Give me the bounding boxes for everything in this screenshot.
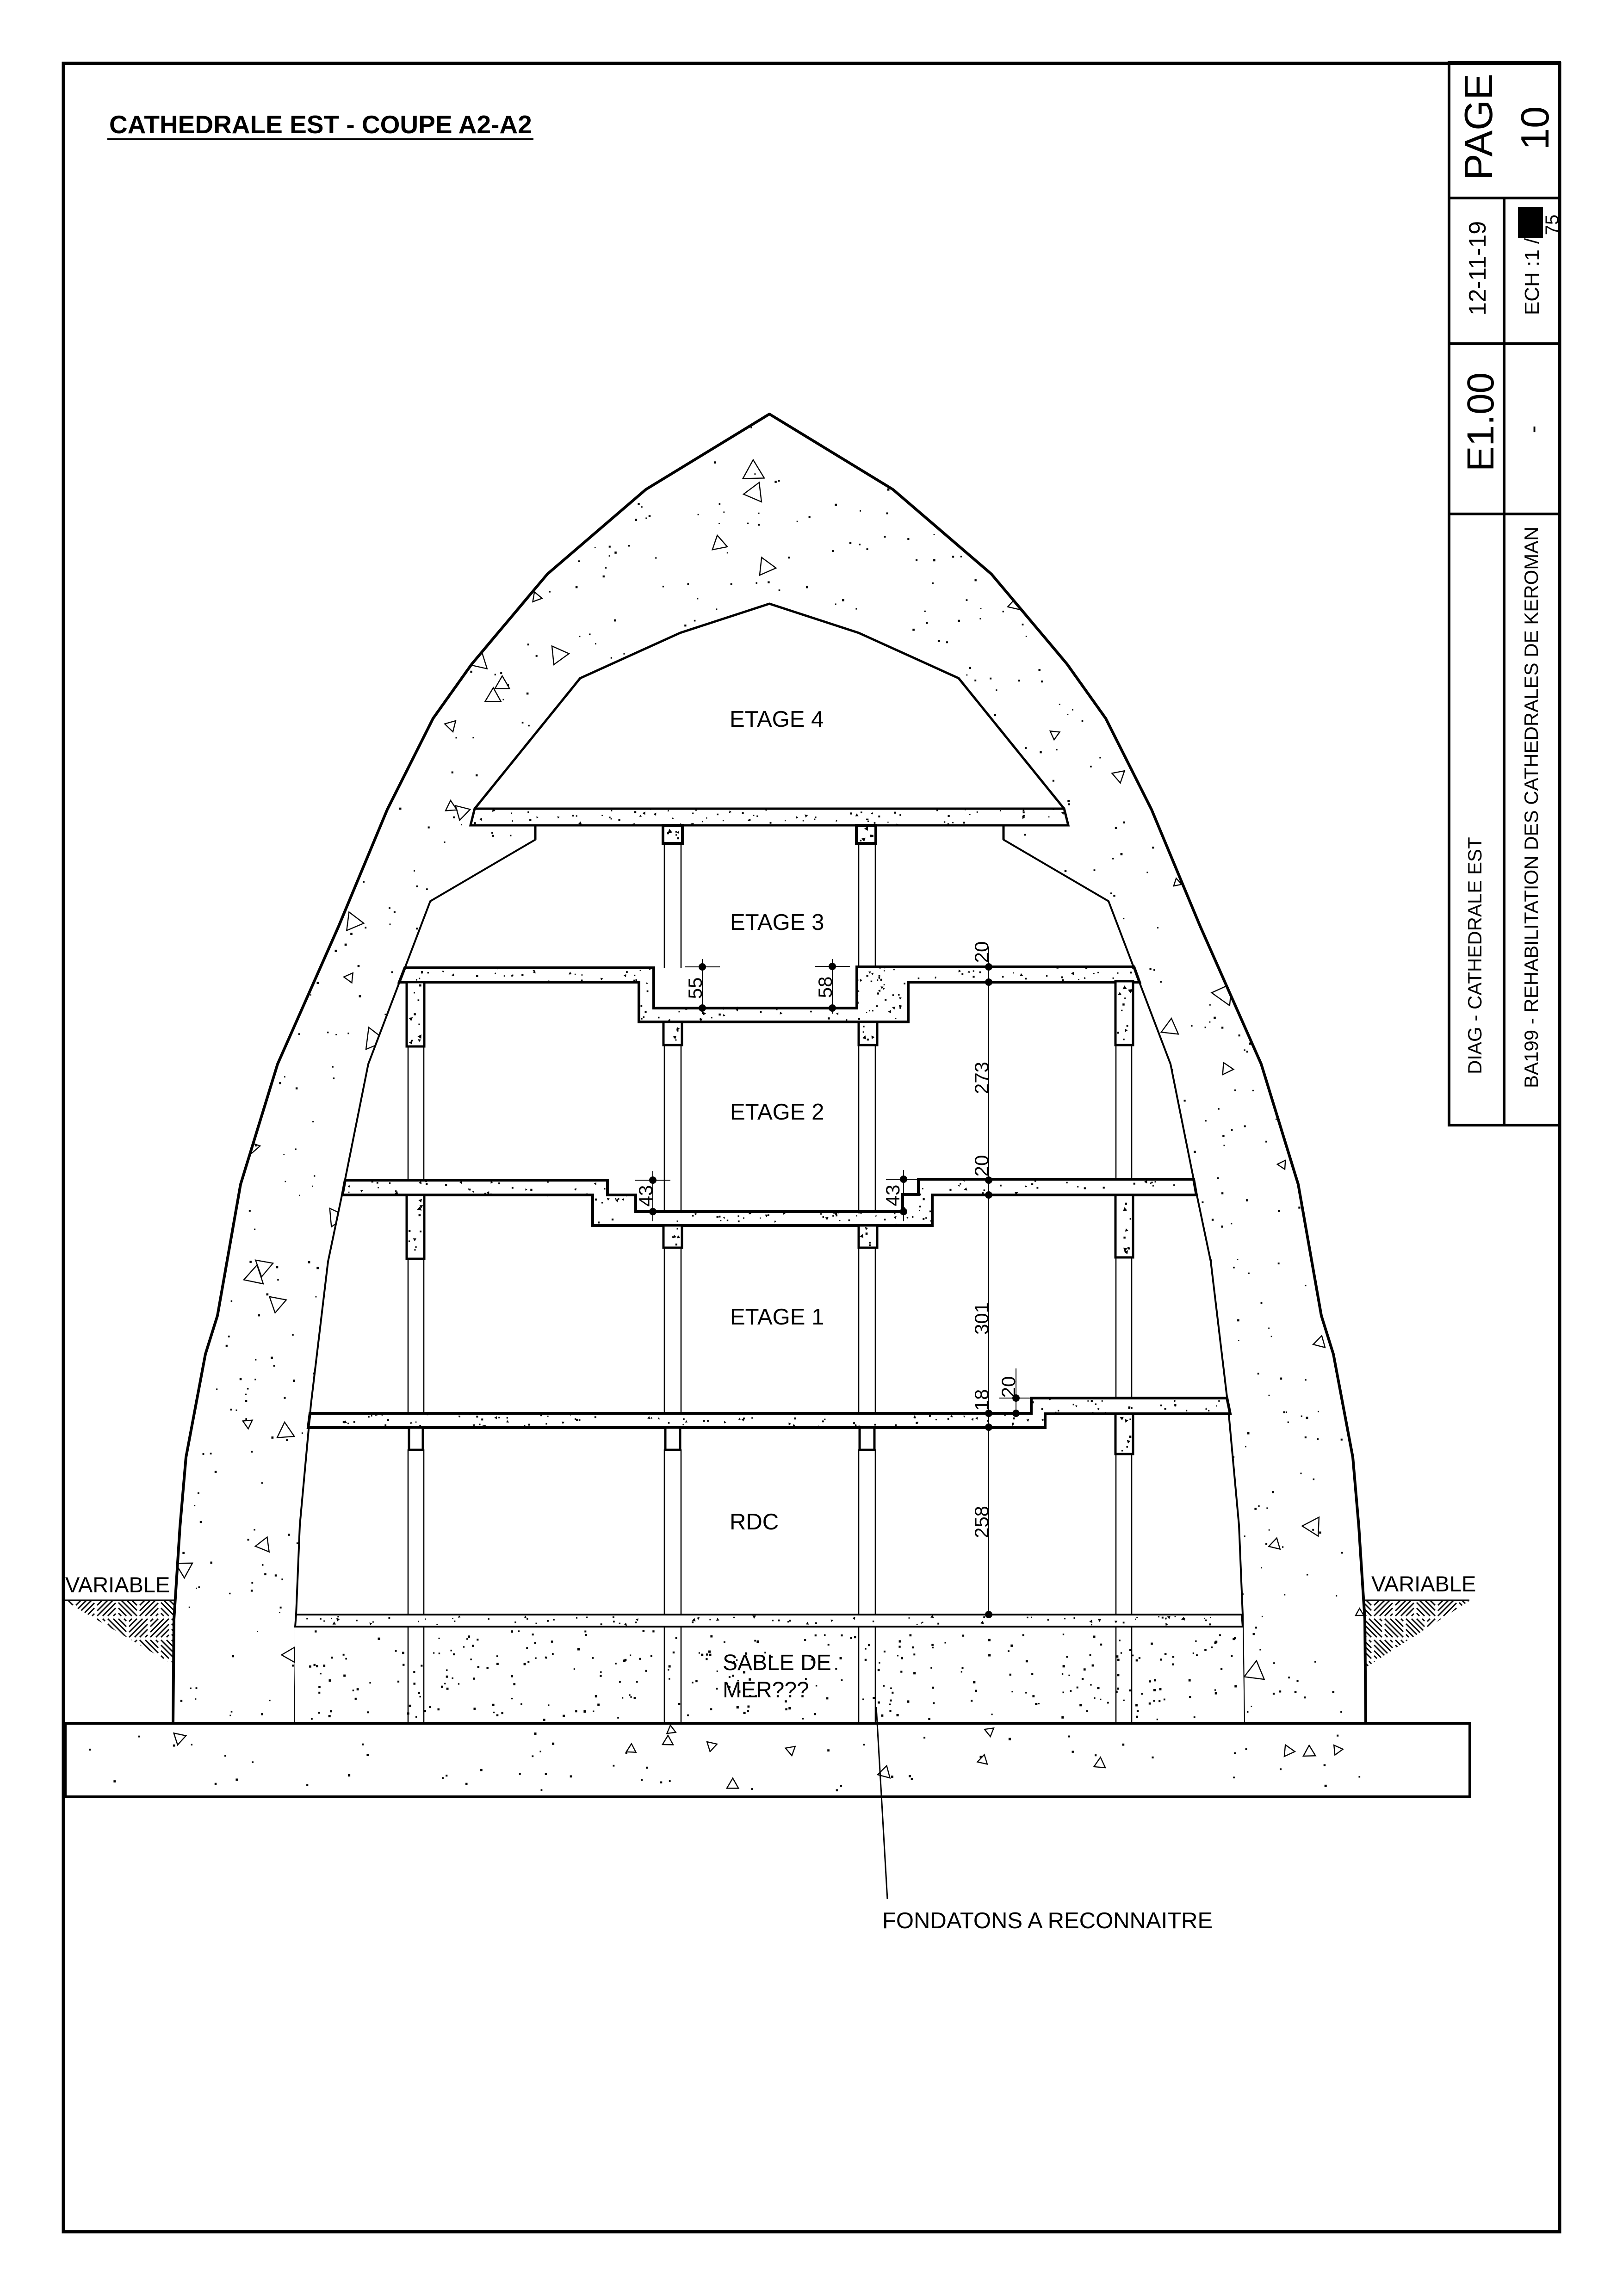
svg-text:ETAGE 1: ETAGE 1 <box>730 1305 824 1330</box>
svg-text:258: 258 <box>971 1506 992 1538</box>
svg-text:20: 20 <box>997 1376 1019 1398</box>
svg-text:55: 55 <box>684 978 706 999</box>
svg-text:ETAGE 3: ETAGE 3 <box>730 910 824 935</box>
svg-text:ECH :1 /: ECH :1 / <box>1521 238 1543 315</box>
svg-text:43: 43 <box>635 1185 657 1207</box>
svg-text:273: 273 <box>971 1062 992 1094</box>
svg-text:58: 58 <box>814 977 836 998</box>
svg-text:SABLE DE: SABLE DE <box>723 1651 831 1675</box>
svg-text:BA199 - REHABILITATION DES CAT: BA199 - REHABILITATION DES CATHEDRALES D… <box>1520 526 1542 1088</box>
svg-text:FONDATONS A RECONNAITRE: FONDATONS A RECONNAITRE <box>882 1908 1213 1933</box>
svg-text:DIAG - CATHEDRALE EST: DIAG - CATHEDRALE EST <box>1464 837 1486 1074</box>
svg-text:VARIABLE: VARIABLE <box>1371 1572 1476 1596</box>
svg-text:ETAGE 2: ETAGE 2 <box>730 1100 824 1125</box>
svg-text:43: 43 <box>882 1185 904 1207</box>
svg-text:20: 20 <box>971 941 992 963</box>
svg-text:18: 18 <box>971 1389 992 1411</box>
svg-text:VARIABLE: VARIABLE <box>65 1572 170 1597</box>
svg-text:12-11-19: 12-11-19 <box>1464 221 1491 316</box>
svg-text:75: 75 <box>1542 215 1562 235</box>
svg-text:20: 20 <box>971 1155 992 1177</box>
svg-text:ETAGE 4: ETAGE 4 <box>730 707 824 732</box>
svg-text:-: - <box>1520 426 1546 433</box>
svg-text:10: 10 <box>1513 106 1557 150</box>
svg-text:RDC: RDC <box>730 1510 779 1535</box>
svg-text:MER???: MER??? <box>723 1678 809 1702</box>
svg-text:PAGE: PAGE <box>1457 74 1501 180</box>
svg-text:301: 301 <box>971 1302 992 1335</box>
svg-text:E1.00: E1.00 <box>1460 372 1502 471</box>
svg-text:CATHEDRALE EST - COUPE A2-A2: CATHEDRALE EST - COUPE A2-A2 <box>109 110 532 139</box>
